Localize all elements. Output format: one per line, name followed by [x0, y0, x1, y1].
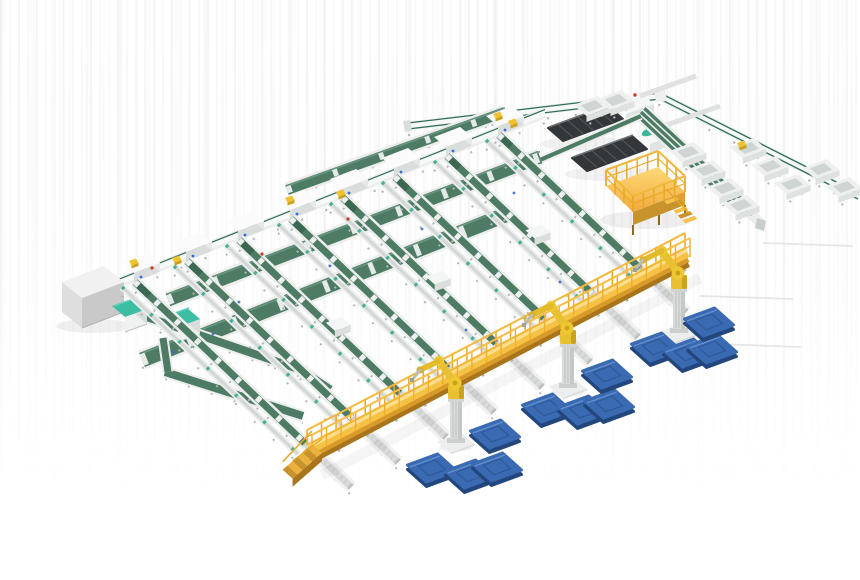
render-stage [0, 0, 860, 580]
chute-bin [774, 174, 811, 202]
sorting-facility-render [0, 0, 860, 580]
pallet [583, 360, 632, 393]
infeed-cabinet [56, 266, 132, 333]
pallet [471, 420, 520, 453]
